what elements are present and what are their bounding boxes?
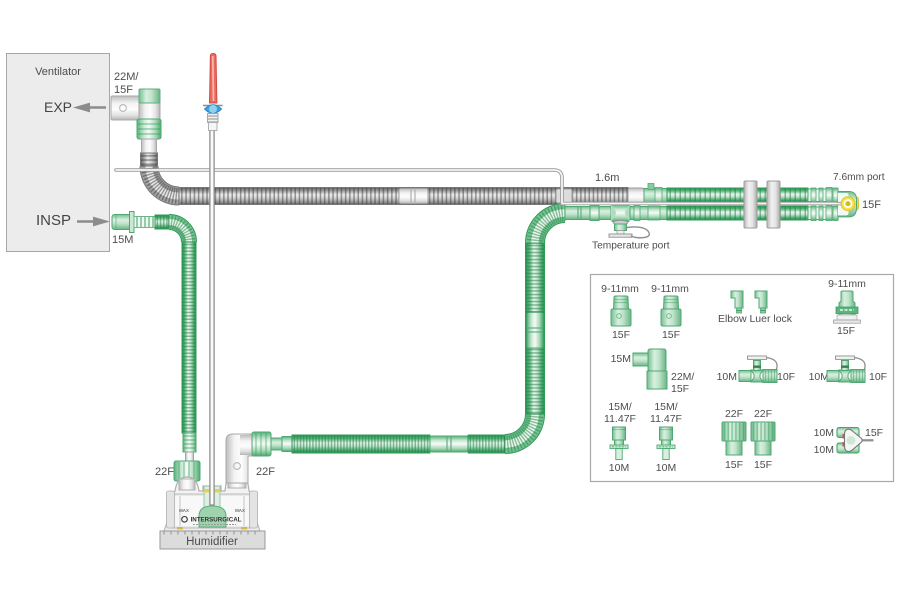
svg-text:MAX: MAX (179, 508, 189, 513)
svg-text:7.6mm port: 7.6mm port (833, 172, 885, 183)
svg-text:EXP: EXP (44, 99, 72, 115)
svg-text:Elbow Luer lock: Elbow Luer lock (718, 313, 793, 325)
svg-text:1.6m: 1.6m (595, 172, 619, 184)
svg-text:15F: 15F (612, 329, 630, 341)
svg-text:9-11mm: 9-11mm (651, 283, 689, 295)
svg-text:10M: 10M (809, 371, 829, 383)
svg-text:22F: 22F (155, 466, 174, 478)
svg-text:15M: 15M (611, 353, 631, 365)
svg-text:22F: 22F (725, 408, 743, 420)
svg-text:10M: 10M (717, 371, 737, 383)
svg-text:22M/: 22M/ (114, 71, 139, 83)
svg-text:15F: 15F (754, 459, 772, 471)
svg-text:10M: 10M (609, 462, 629, 474)
svg-text:22F: 22F (754, 408, 772, 420)
svg-text:15F: 15F (725, 459, 743, 471)
svg-text:15F: 15F (662, 329, 680, 341)
svg-text:Ventilator: Ventilator (35, 66, 81, 78)
svg-text:22F: 22F (256, 466, 275, 478)
svg-text:10M: 10M (814, 444, 834, 456)
svg-text:22M/: 22M/ (671, 371, 694, 383)
svg-text:15F: 15F (862, 199, 881, 211)
svg-text:15F: 15F (837, 325, 855, 337)
svg-text:INTERSURGICAL: INTERSURGICAL (191, 517, 242, 524)
svg-text:15F: 15F (671, 383, 689, 395)
svg-text:15M/: 15M/ (654, 401, 677, 413)
svg-text:10F: 10F (777, 371, 795, 383)
svg-text:10F: 10F (869, 371, 887, 383)
svg-text:15M/: 15M/ (608, 401, 631, 413)
svg-text:10M: 10M (814, 427, 834, 439)
svg-text:15M: 15M (112, 234, 133, 246)
svg-text:11.47F: 11.47F (604, 413, 636, 425)
svg-text:9-11mm: 9-11mm (601, 283, 639, 295)
svg-text:15F: 15F (865, 427, 883, 439)
svg-text:Temperature port: Temperature port (592, 241, 670, 252)
svg-text:10M: 10M (656, 462, 676, 474)
svg-text:INSP: INSP (36, 212, 71, 229)
svg-text:Humidifier: Humidifier (186, 536, 238, 548)
svg-text:9-11mm: 9-11mm (828, 278, 866, 290)
svg-text:15F: 15F (114, 84, 133, 96)
svg-text:MAX: MAX (235, 508, 245, 513)
svg-text:11.47F: 11.47F (650, 413, 682, 425)
